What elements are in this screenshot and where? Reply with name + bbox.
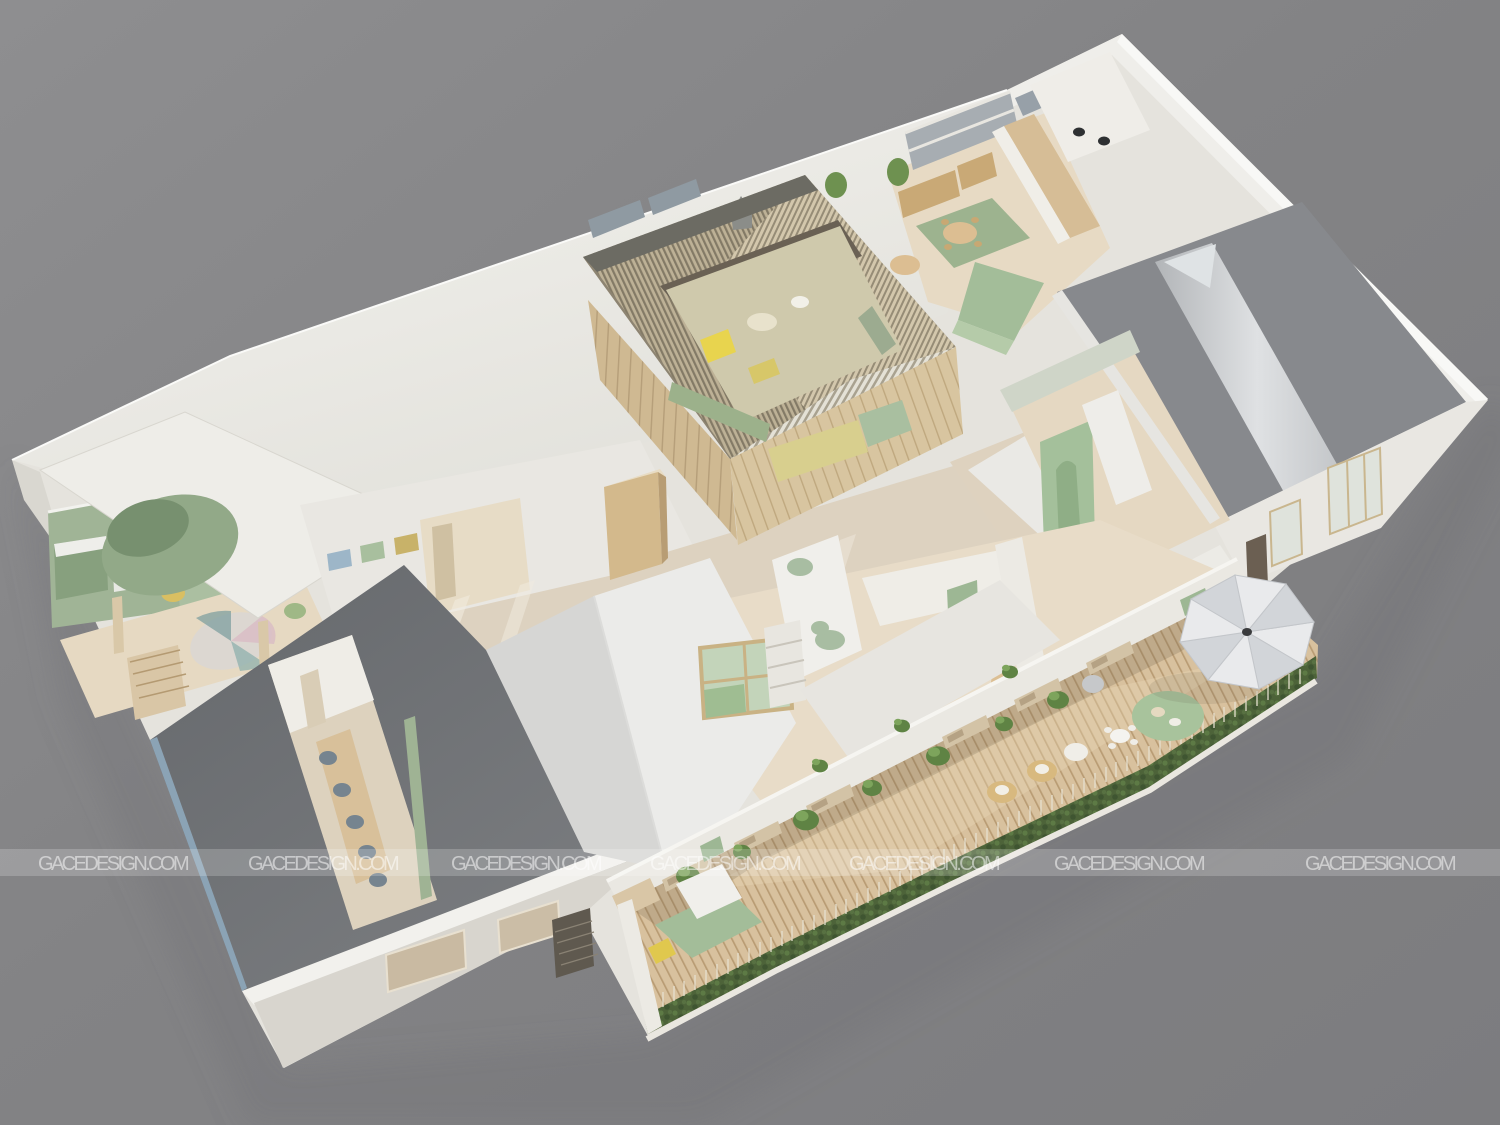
svg-text:GACEDESIGN.COM: GACEDESIGN.COM <box>38 853 190 875</box>
svg-text:GACEDESIGN.COM: GACEDESIGN.COM <box>248 853 400 875</box>
svg-text:GACEDESIGN.COM: GACEDESIGN.COM <box>451 853 603 875</box>
svg-text:GACEDESIGN.COM: GACEDESIGN.COM <box>1054 853 1206 875</box>
svg-text:GACEDESIGN.COM: GACEDESIGN.COM <box>650 853 802 875</box>
svg-text:GACEDESIGN.COM: GACEDESIGN.COM <box>849 853 1001 875</box>
svg-text:GACEDESIGN.COM: GACEDESIGN.COM <box>1305 853 1457 875</box>
